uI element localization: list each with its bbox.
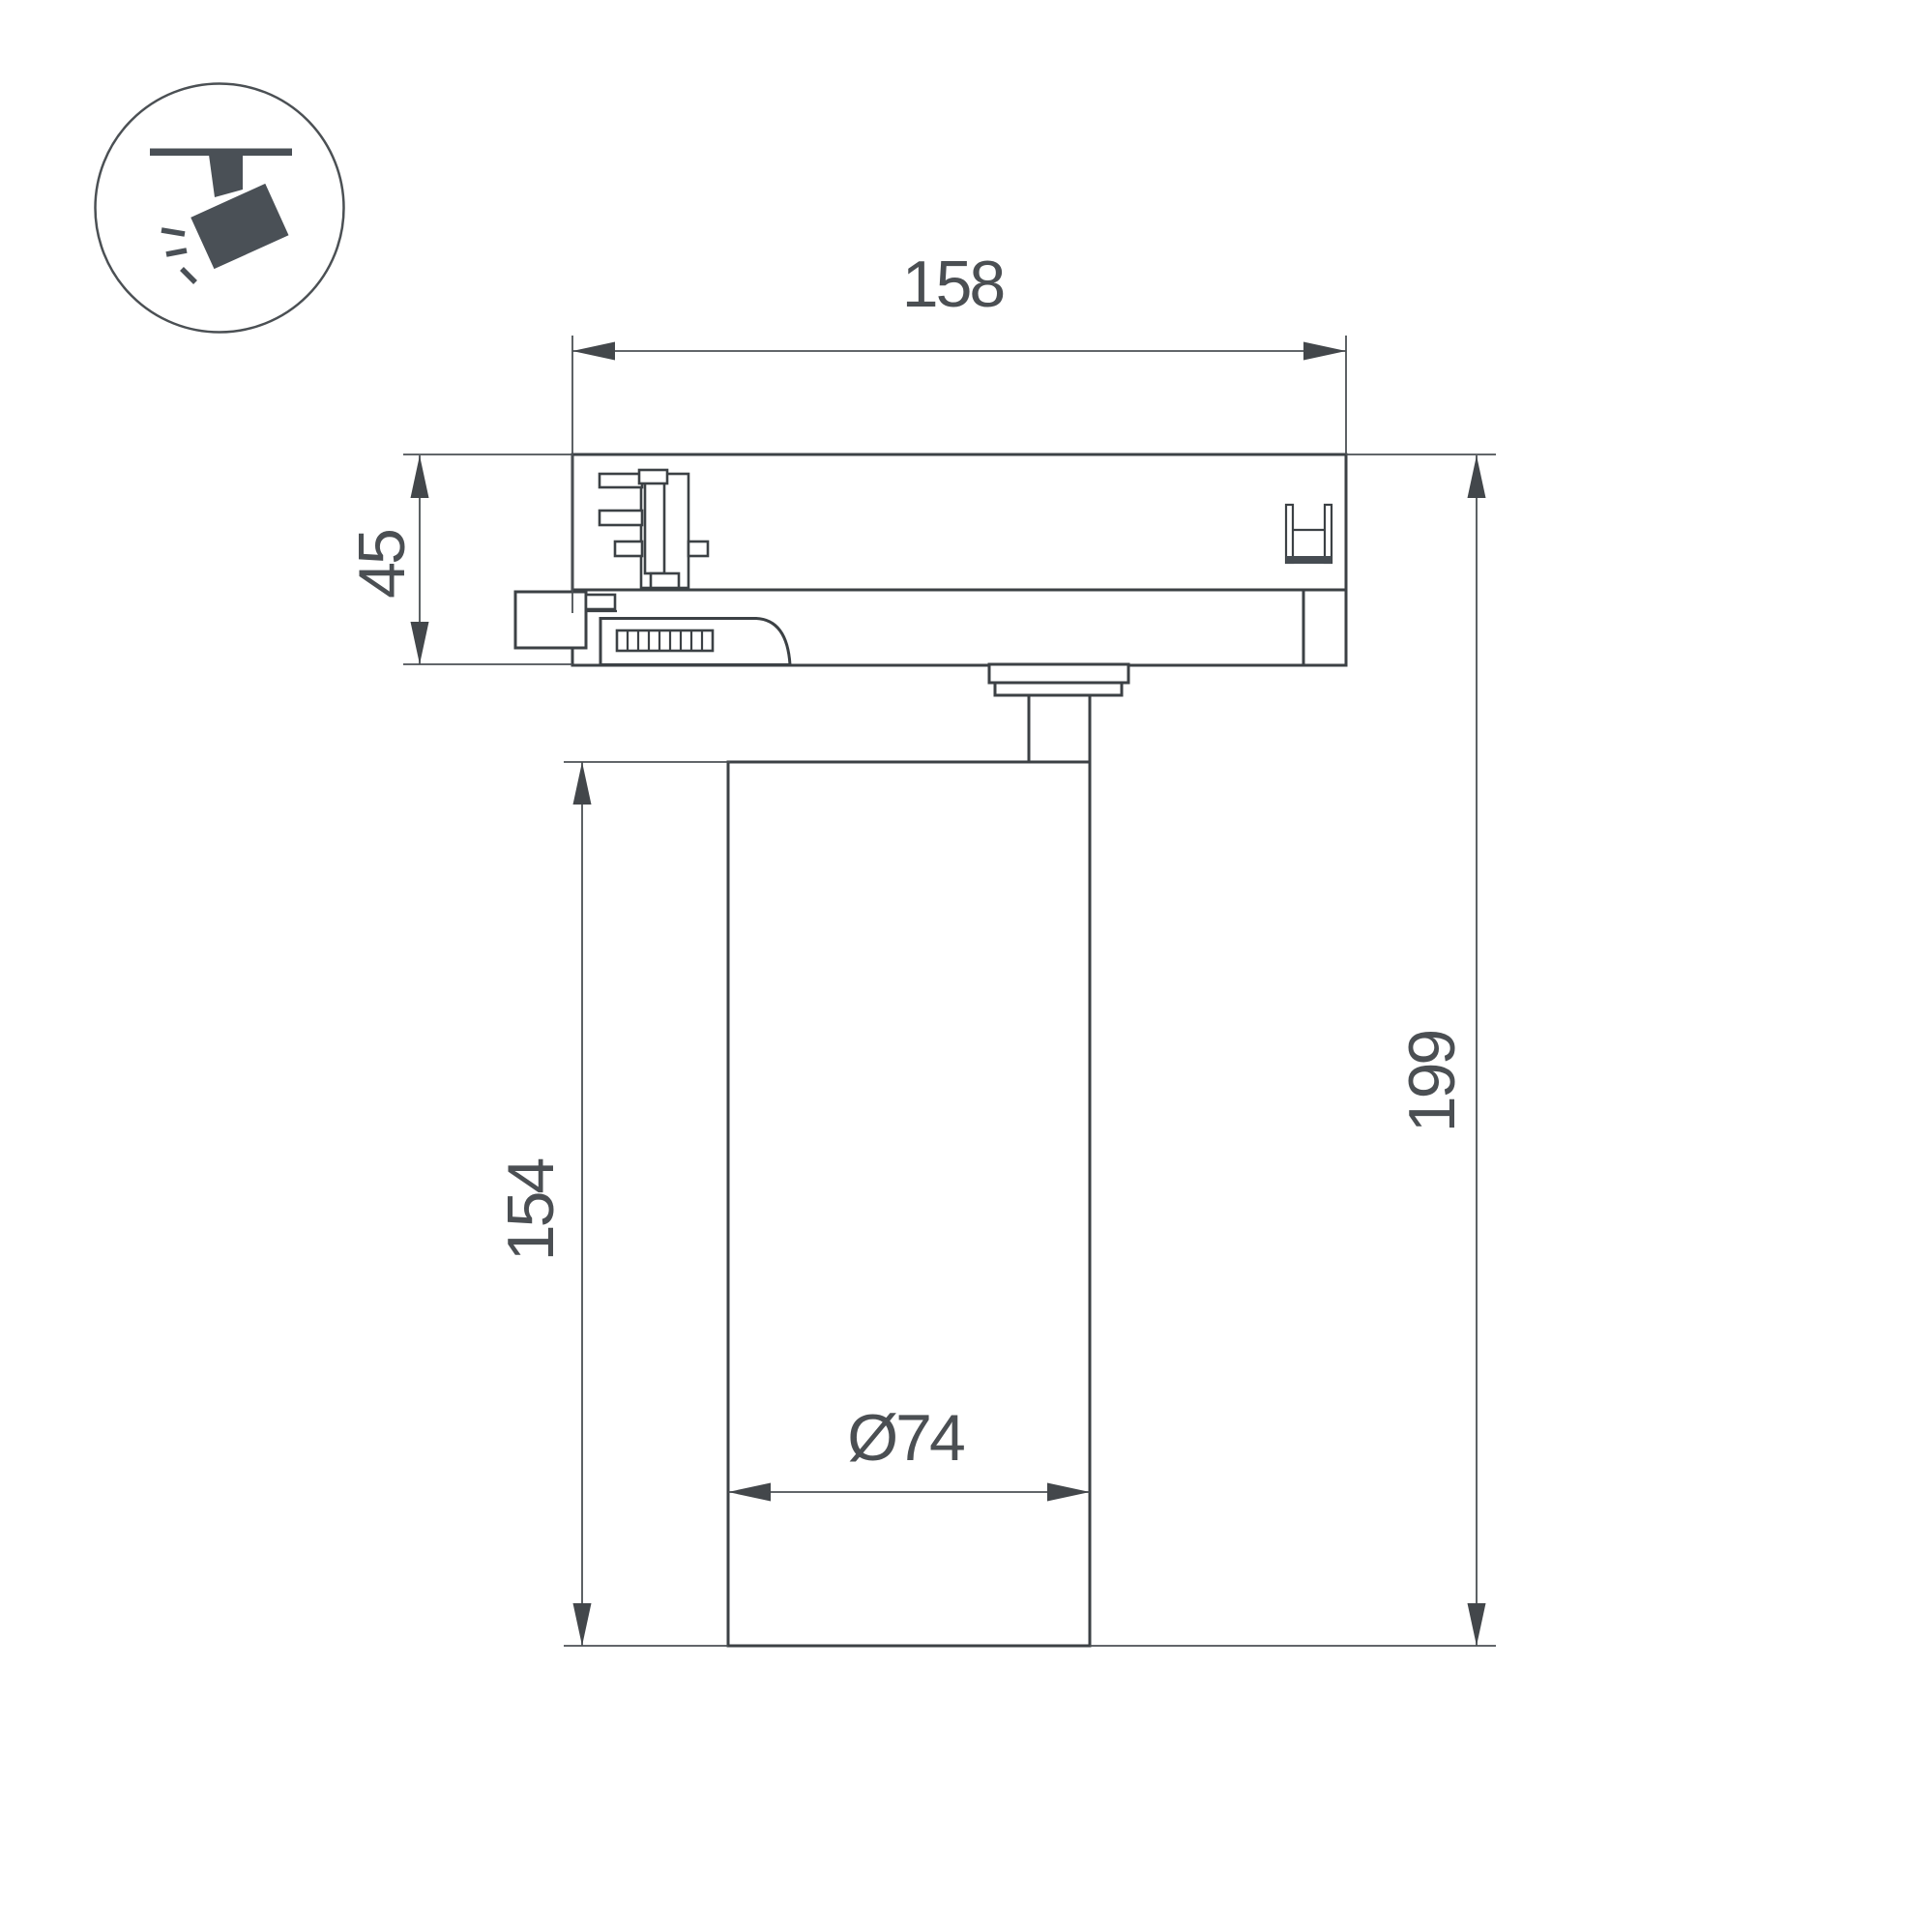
dimension-drawing: 158 45 154 199 Ø74 xyxy=(0,0,1932,1932)
connector-screw-head xyxy=(639,470,667,483)
arrowhead-left xyxy=(572,342,615,361)
selector-ridges-box xyxy=(617,630,713,651)
track-adapter xyxy=(515,454,1346,665)
dimension-label-adapter-height: 45 xyxy=(345,531,419,599)
arrowhead-up xyxy=(1468,455,1486,498)
arrowhead-down xyxy=(411,622,429,664)
mount-step-2 xyxy=(995,683,1122,695)
dimension-body-height: 154 xyxy=(494,762,730,1646)
connector-contact-1 xyxy=(600,474,642,487)
connector-side-tab xyxy=(688,542,708,556)
drawing-canvas: 158 45 154 199 Ø74 xyxy=(0,0,1932,1932)
track-spotlight-icon xyxy=(96,84,344,333)
mount-step-1 xyxy=(989,664,1128,683)
connector-screw-shaft xyxy=(645,482,664,573)
connector-foot xyxy=(651,573,679,588)
connector-contact-3 xyxy=(615,542,642,556)
selector-switch xyxy=(617,630,713,651)
arrowhead-down xyxy=(573,1603,592,1646)
dimension-label-body-height: 154 xyxy=(494,1159,568,1262)
latch-block xyxy=(515,592,586,648)
connector-contact-2 xyxy=(600,511,642,525)
icon-track-bar xyxy=(150,149,292,157)
swivel-mount xyxy=(989,664,1128,762)
lamp-body-cylinder xyxy=(728,762,1090,1646)
arrowhead-up xyxy=(411,455,429,498)
arrowhead-down xyxy=(1468,1603,1486,1646)
latch-tab xyxy=(586,595,615,609)
arrowhead-up xyxy=(573,762,592,805)
bracket-bottom-bar xyxy=(1286,556,1332,564)
dimension-label-body-diameter: Ø74 xyxy=(847,1401,964,1475)
arrowhead-right xyxy=(1303,342,1346,361)
dimension-label-total-height: 199 xyxy=(1395,1032,1469,1133)
dimension-label-adapter-width: 158 xyxy=(902,248,1004,321)
icon-stem xyxy=(209,155,243,197)
